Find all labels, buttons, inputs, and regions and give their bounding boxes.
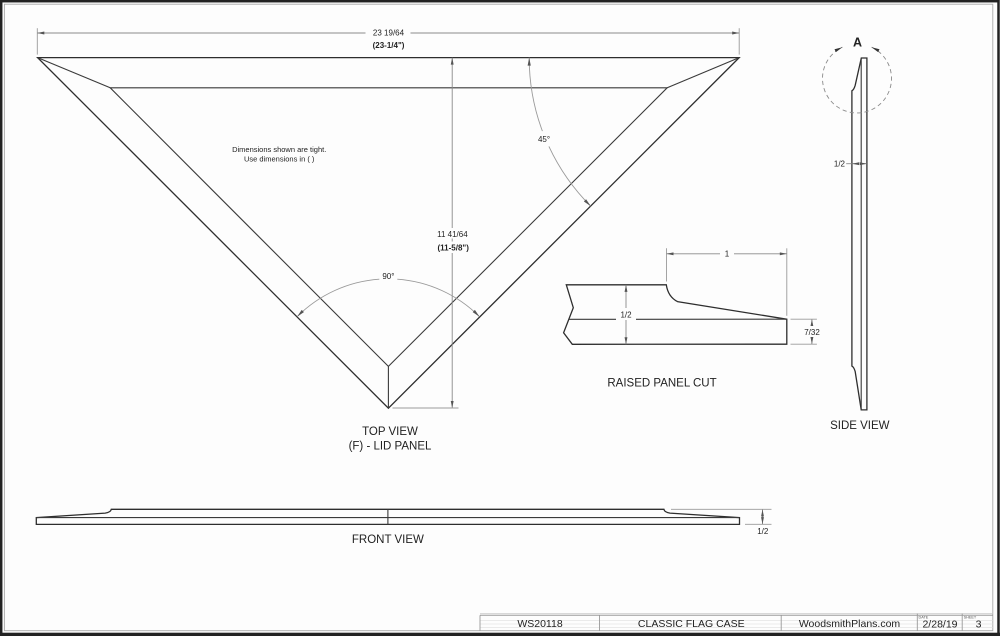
svg-text:(F) - LID PANEL: (F) - LID PANEL xyxy=(349,440,432,452)
svg-text:FRONT VIEW: FRONT VIEW xyxy=(352,534,424,546)
svg-text:WoodsmithPlans.com: WoodsmithPlans.com xyxy=(799,618,901,630)
svg-text:SIDE VIEW: SIDE VIEW xyxy=(830,420,890,432)
svg-text:RAISED PANEL CUT: RAISED PANEL CUT xyxy=(607,378,716,390)
svg-text:TOP VIEW: TOP VIEW xyxy=(362,426,418,438)
svg-text:1: 1 xyxy=(725,250,730,259)
svg-text:90°: 90° xyxy=(382,272,394,281)
svg-text:Dimensions shown are tight.: Dimensions shown are tight. xyxy=(232,145,326,154)
svg-text:7/32: 7/32 xyxy=(804,328,820,337)
svg-text:23 19/64: 23 19/64 xyxy=(373,28,405,37)
svg-text:WS20118: WS20118 xyxy=(517,618,562,630)
svg-text:3: 3 xyxy=(976,618,982,630)
svg-text:1/2: 1/2 xyxy=(620,311,632,320)
svg-text:2/28/19: 2/28/19 xyxy=(922,618,957,630)
svg-text:1/2: 1/2 xyxy=(834,160,846,169)
svg-text:Use dimensions in ( ): Use dimensions in ( ) xyxy=(244,154,315,163)
svg-text:CLASSIC FLAG CASE: CLASSIC FLAG CASE xyxy=(638,618,745,630)
svg-text:A: A xyxy=(853,36,862,50)
svg-text:11 41/64: 11 41/64 xyxy=(437,230,468,239)
svg-text:(11-5/8"): (11-5/8") xyxy=(438,243,470,252)
svg-text:1/2: 1/2 xyxy=(757,527,769,536)
svg-text:45°: 45° xyxy=(538,135,550,144)
svg-text:(23-1/4"): (23-1/4") xyxy=(373,41,405,50)
